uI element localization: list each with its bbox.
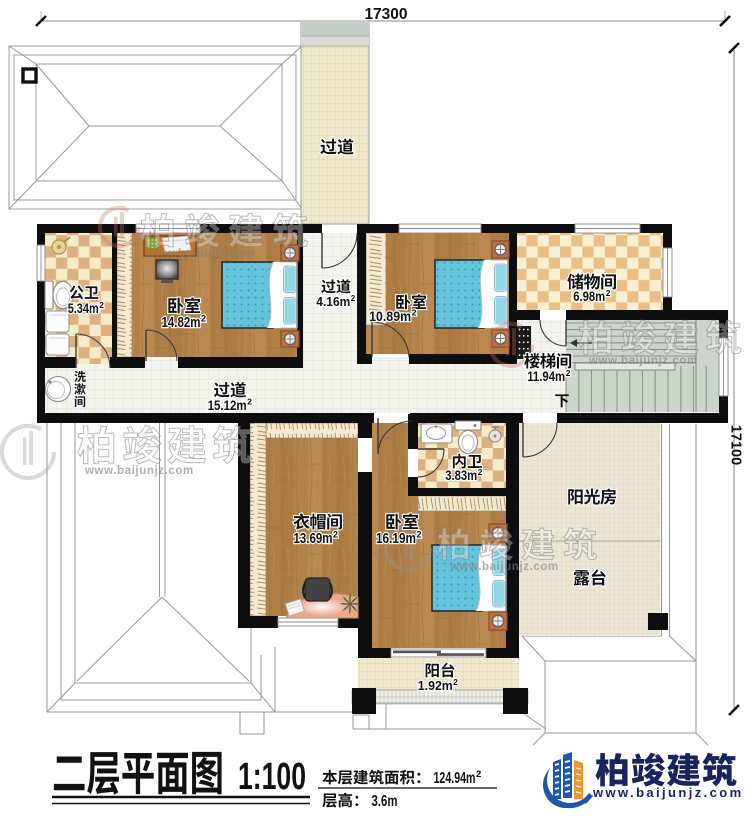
svg-text:4.16m: 4.16m — [316, 294, 350, 309]
svg-text:www.baijunjz.com: www.baijunjz.com — [145, 248, 255, 260]
svg-text:www.baijunjz.com: www.baijunjz.com — [588, 355, 698, 367]
svg-text:2: 2 — [247, 397, 252, 407]
svg-text:3.6m: 3.6m — [372, 793, 398, 810]
svg-text:2: 2 — [412, 308, 417, 318]
svg-text:1.92m: 1.92m — [418, 678, 453, 693]
svg-text:2: 2 — [476, 769, 481, 780]
svg-text:15.12m: 15.12m — [208, 397, 247, 413]
svg-text:2: 2 — [201, 314, 206, 324]
svg-text:2: 2 — [478, 467, 483, 477]
svg-text:124.94m: 124.94m — [434, 770, 476, 787]
svg-text:6.98m: 6.98m — [573, 289, 605, 304]
svg-text:11.94m: 11.94m — [527, 369, 565, 384]
svg-text:10.89m: 10.89m — [369, 308, 411, 324]
svg-text:1:100: 1:100 — [238, 756, 306, 798]
svg-text:www.baijunjz.com: www.baijunjz.com — [449, 561, 559, 573]
svg-text:2: 2 — [606, 288, 611, 298]
svg-text:2: 2 — [453, 678, 458, 687]
svg-text:17100: 17100 — [728, 425, 744, 465]
svg-text:2: 2 — [417, 530, 422, 540]
svg-text:5.34m: 5.34m — [68, 301, 99, 316]
svg-text:2: 2 — [351, 294, 356, 303]
svg-text:17300: 17300 — [364, 6, 407, 23]
svg-text:13.69m: 13.69m — [294, 531, 333, 547]
svg-text:www.baijunjz.com: www.baijunjz.com — [592, 785, 744, 800]
svg-text:14.82m: 14.82m — [162, 315, 201, 331]
svg-text:2: 2 — [333, 530, 338, 540]
svg-text:www.baijunjz.com: www.baijunjz.com — [84, 465, 194, 477]
svg-text:2: 2 — [566, 368, 571, 378]
svg-text:16.19m: 16.19m — [376, 531, 416, 547]
svg-text:2: 2 — [99, 300, 104, 310]
svg-text:3.83m: 3.83m — [445, 468, 477, 483]
